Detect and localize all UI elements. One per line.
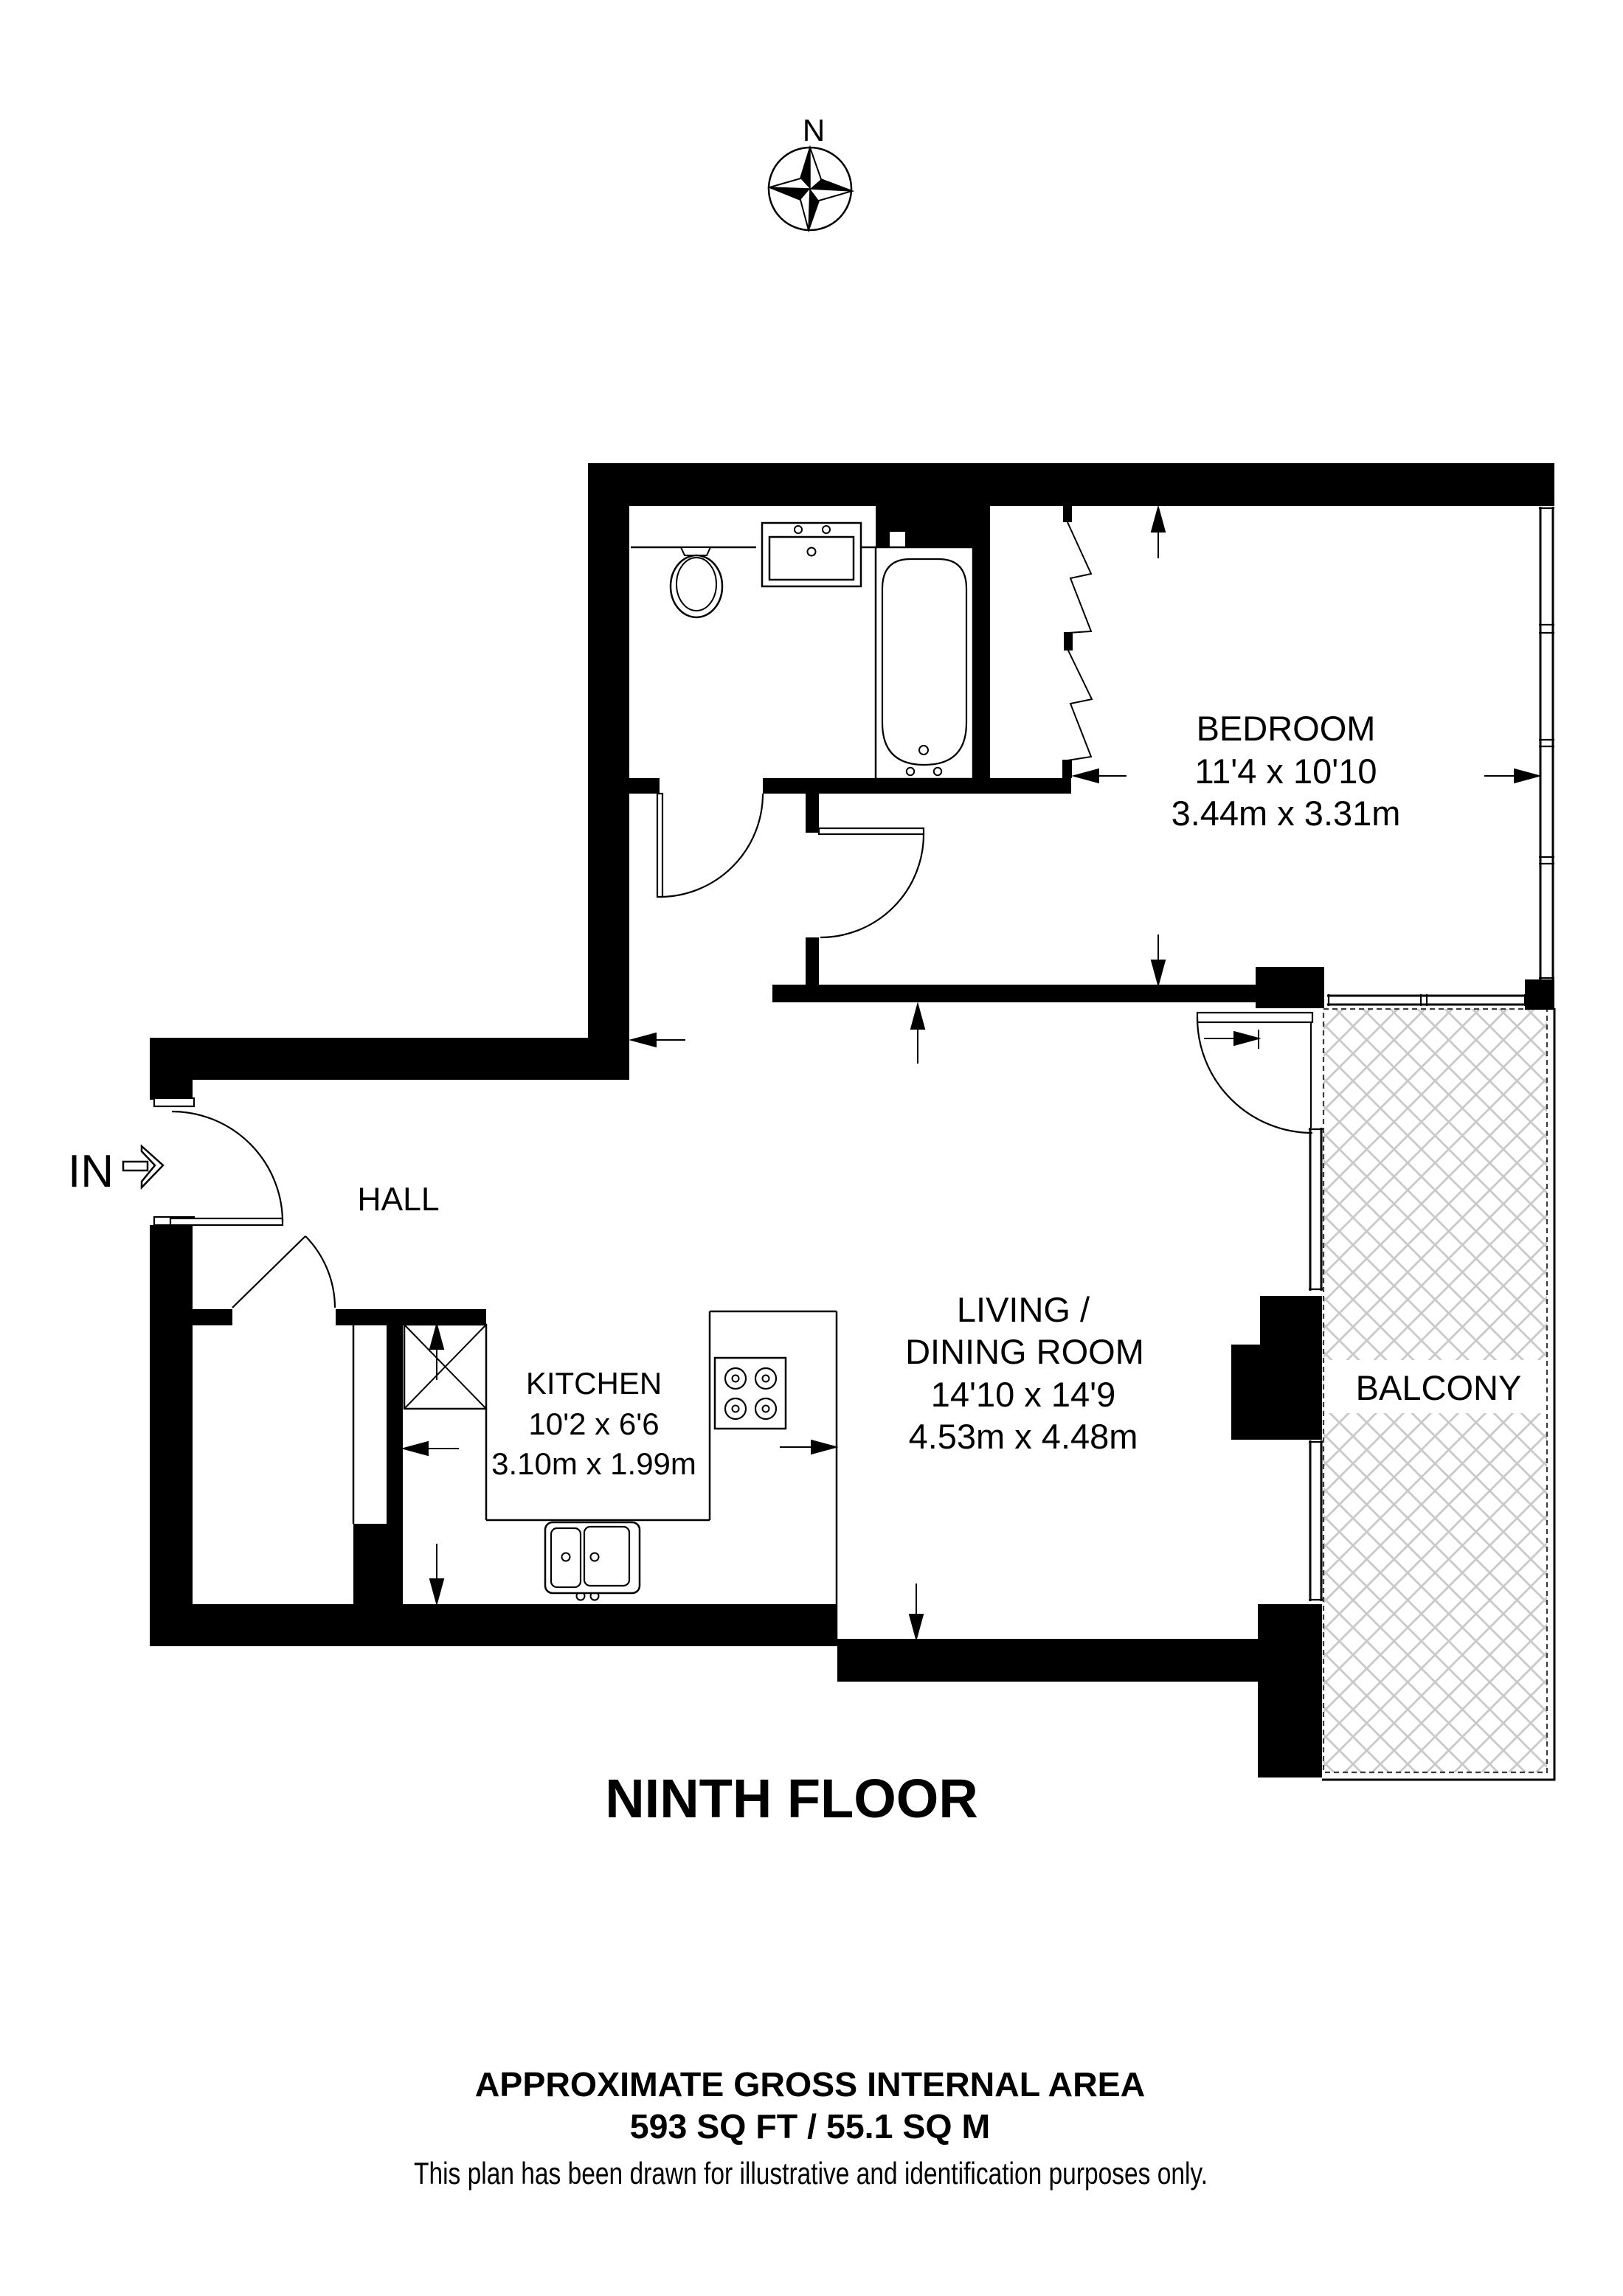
svg-text:NINTH FLOOR: NINTH FLOOR <box>605 1768 978 1829</box>
svg-text:14'10 x 14'9: 14'10 x 14'9 <box>931 1375 1116 1414</box>
svg-text:3.44m x 3.31m: 3.44m x 3.31m <box>1172 794 1401 833</box>
svg-text:IN: IN <box>68 1146 114 1197</box>
svg-text:11'4 x 10'10: 11'4 x 10'10 <box>1194 752 1377 791</box>
svg-text:10'2 x 6'6: 10'2 x 6'6 <box>528 1407 659 1441</box>
svg-text:KITCHEN: KITCHEN <box>526 1366 662 1401</box>
svg-text:593 SQ FT / 55.1 SQ M: 593 SQ FT / 55.1 SQ M <box>630 2107 990 2146</box>
svg-text:This plan has been drawn for i: This plan has been drawn for illustrativ… <box>414 2156 1208 2191</box>
svg-text:4.53m x 4.48m: 4.53m x 4.48m <box>909 1417 1138 1456</box>
svg-text:APPROXIMATE GROSS INTERNAL ARE: APPROXIMATE GROSS INTERNAL AREA <box>475 2065 1146 2103</box>
svg-text:BEDROOM: BEDROOM <box>1197 709 1376 748</box>
svg-text:DINING ROOM: DINING ROOM <box>905 1332 1144 1371</box>
svg-text:HALL: HALL <box>357 1182 439 1218</box>
svg-text:N: N <box>803 113 825 148</box>
svg-text:LIVING /: LIVING / <box>957 1290 1090 1329</box>
svg-text:3.10m x 1.99m: 3.10m x 1.99m <box>491 1446 696 1481</box>
svg-text:BALCONY: BALCONY <box>1356 1368 1522 1407</box>
